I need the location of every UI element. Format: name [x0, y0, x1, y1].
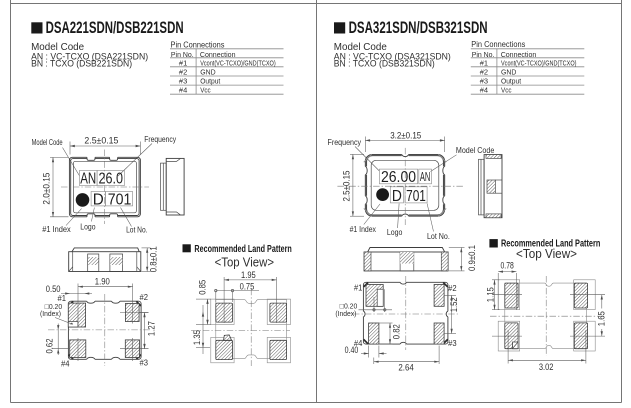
svg-text:D: D [93, 192, 104, 209]
svg-text:#3: #3 [448, 339, 457, 348]
svg-text:3.02: 3.02 [539, 362, 554, 372]
svg-text:#3: #3 [179, 76, 187, 85]
svg-text:1.65: 1.65 [596, 311, 606, 326]
svg-text:0.62: 0.62 [44, 339, 54, 354]
svg-text:1.90: 1.90 [95, 276, 110, 286]
svg-text:2.0±0.15: 2.0±0.15 [42, 173, 52, 205]
svg-text:701: 701 [406, 188, 426, 205]
svg-text:701: 701 [108, 192, 132, 209]
svg-text:#3: #3 [140, 359, 149, 368]
svg-text:#1: #1 [354, 283, 363, 292]
svg-text:GND: GND [200, 67, 216, 76]
svg-text:DSA321SDN/DSB321SDN: DSA321SDN/DSB321SDN [349, 18, 488, 37]
svg-text:Model Code: Model Code [32, 138, 63, 147]
svg-text:Vcc: Vcc [200, 86, 211, 95]
svg-text:26.0: 26.0 [99, 171, 124, 188]
svg-text:D: D [392, 188, 402, 205]
svg-text:AN: AN [80, 171, 96, 188]
svg-text:Lot No.: Lot No. [126, 225, 147, 234]
svg-text:BN : TCXO (DSB321SDN): BN : TCXO (DSB321SDN) [334, 58, 435, 68]
svg-text:2.5±0.15: 2.5±0.15 [84, 136, 118, 146]
svg-text:Vcont(VC-TCXO)/GND(TCXO): Vcont(VC-TCXO)/GND(TCXO) [200, 58, 276, 67]
svg-text:Vcont(VC-TCXO)/GND(TCXO): Vcont(VC-TCXO)/GND(TCXO) [501, 58, 577, 67]
svg-text:#4: #4 [480, 86, 488, 95]
svg-text:GND: GND [501, 67, 517, 76]
svg-text:#3: #3 [480, 76, 488, 85]
svg-text:Pin Connections: Pin Connections [471, 40, 525, 49]
svg-text:3.2±0.15: 3.2±0.15 [390, 131, 421, 141]
svg-text:0.85: 0.85 [197, 280, 207, 295]
svg-text:#4: #4 [179, 86, 187, 95]
svg-text:26.00: 26.00 [381, 169, 416, 186]
svg-text:1.35: 1.35 [192, 330, 202, 345]
svg-text:Recommended Land Pattern: Recommended Land Pattern [194, 244, 291, 255]
svg-text:1.95: 1.95 [241, 270, 256, 280]
svg-text:#1 Index: #1 Index [350, 225, 376, 234]
svg-text:Pin No.: Pin No. [472, 50, 495, 59]
svg-text:(Index): (Index) [40, 309, 61, 318]
svg-text:0.75: 0.75 [240, 281, 255, 291]
svg-text:#2: #2 [140, 293, 149, 302]
svg-text:(Index): (Index) [335, 309, 356, 318]
svg-text:0.50: 0.50 [46, 284, 61, 294]
svg-text:Lot No.: Lot No. [427, 232, 450, 241]
svg-text:#2: #2 [480, 67, 488, 76]
svg-text:Frequency: Frequency [328, 138, 362, 147]
svg-text:0.82: 0.82 [392, 324, 402, 339]
svg-text:2.64: 2.64 [398, 363, 413, 373]
svg-text:AN: AN [420, 170, 431, 184]
svg-text:#2: #2 [179, 67, 187, 76]
svg-text:Frequency: Frequency [144, 135, 176, 144]
svg-text:0.8±0.1: 0.8±0.1 [148, 246, 158, 272]
svg-text:<Top View>: <Top View> [215, 255, 274, 269]
svg-text:#2: #2 [448, 284, 457, 293]
svg-text:Vcc: Vcc [501, 86, 512, 95]
svg-text:DSA221SDN/DSB221SDN: DSA221SDN/DSB221SDN [46, 18, 184, 37]
svg-text:Logo: Logo [80, 222, 96, 231]
svg-text:1.27: 1.27 [147, 321, 157, 336]
svg-text:#1 Index: #1 Index [42, 225, 70, 234]
svg-text:Model Code: Model Code [456, 146, 495, 155]
svg-text:BN : TCXO (DSB221SDN): BN : TCXO (DSB221SDN) [31, 58, 132, 68]
svg-text:#1: #1 [58, 294, 67, 303]
svg-text:<Top View>: <Top View> [516, 247, 577, 261]
svg-text:Pin No.: Pin No. [171, 50, 194, 59]
svg-text:Logo: Logo [387, 228, 403, 237]
svg-text:#4: #4 [354, 339, 363, 348]
svg-text:#4: #4 [61, 359, 70, 368]
svg-text:0.78: 0.78 [501, 260, 514, 270]
svg-text:Pin Connections: Pin Connections [171, 41, 225, 50]
svg-text:Output: Output [501, 76, 522, 85]
svg-text:0.9±0.1: 0.9±0.1 [467, 245, 477, 271]
svg-text:Output: Output [200, 76, 221, 85]
